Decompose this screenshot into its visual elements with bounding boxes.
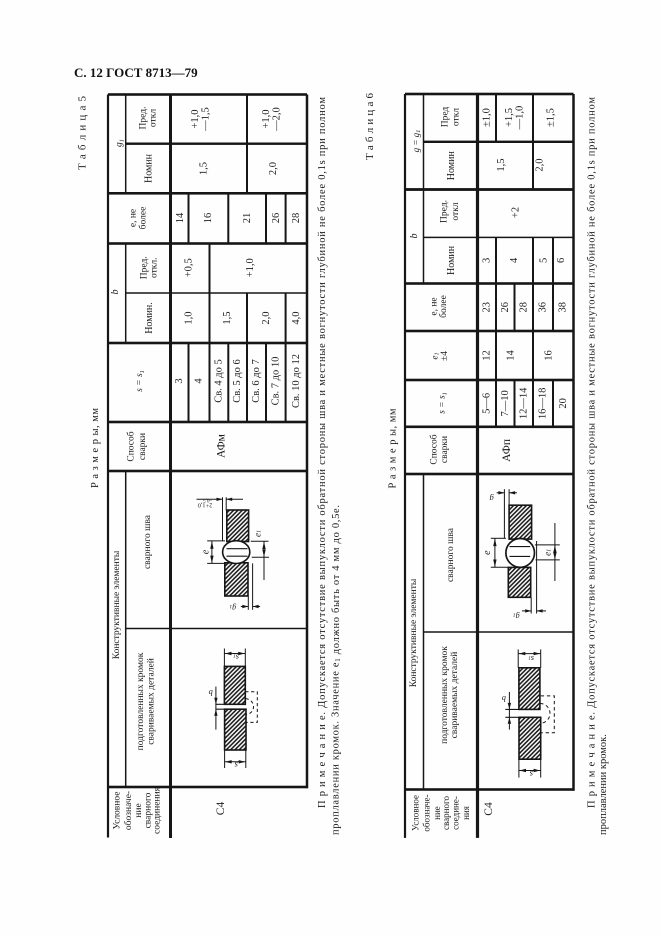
svg-text:21: 21 — [242, 213, 253, 224]
svg-text:Пред.: Пред. — [138, 107, 148, 130]
svg-text:16: 16 — [544, 350, 555, 361]
svg-text:20: 20 — [558, 398, 569, 409]
svg-text:2,0: 2,0 — [535, 158, 546, 171]
svg-text:5—6: 5—6 — [481, 393, 492, 414]
svg-text:Условное: Условное — [113, 792, 123, 830]
svg-text:проплавлении кромок.: проплавлении кромок. — [598, 734, 609, 835]
svg-text:2,0: 2,0 — [268, 162, 279, 175]
svg-text:Св. 5 до 6: Св. 5 до 6 — [232, 359, 243, 403]
svg-text:12—14: 12—14 — [518, 387, 529, 419]
svg-text:Конструктивные элементы: Конструктивные элементы — [409, 578, 419, 687]
svg-text:1,0: 1,0 — [184, 311, 195, 324]
svg-text:проплавлении кромок. Значение: проплавлении кромок. Значение е1 должно … — [331, 505, 343, 835]
svg-text:С4: С4 — [215, 802, 227, 816]
svg-text:s: s — [529, 769, 533, 779]
svg-text:4: 4 — [194, 378, 205, 384]
svg-text:сварного шва: сварного шва — [143, 514, 153, 569]
svg-text:—1,0: —1,0 — [514, 106, 525, 131]
svg-text:Условное: Условное — [410, 795, 420, 831]
svg-text:s: s — [234, 760, 238, 770]
svg-text:свариваемых деталей: свариваемых деталей — [145, 658, 156, 745]
svg-text:соедине-: соедине- — [451, 796, 461, 830]
svg-text:более: более — [438, 295, 449, 318]
svg-text:26: 26 — [271, 213, 282, 224]
svg-text:откл: откл — [451, 108, 461, 126]
svg-text:5: 5 — [539, 258, 550, 263]
svg-text:14: 14 — [175, 212, 186, 223]
svg-text:сварного шва: сварного шва — [446, 527, 456, 582]
svg-text:Св. 6 до 7: Св. 6 до 7 — [251, 359, 262, 403]
svg-text:соединения: соединения — [152, 786, 162, 834]
svg-text:12: 12 — [481, 350, 492, 361]
svg-text:4: 4 — [509, 257, 520, 263]
svg-text:свариваемых деталей: свариваемых деталей — [449, 652, 460, 739]
svg-text:ния: ния — [461, 806, 471, 820]
svg-text:Св. 7 до 10: Св. 7 до 10 — [270, 357, 281, 406]
svg-text:Номин: Номин — [144, 153, 155, 183]
svg-text:28: 28 — [518, 302, 529, 313]
svg-text:+0,5: +0,5 — [184, 258, 195, 277]
svg-text:14: 14 — [506, 350, 517, 361]
svg-text:Способ: Способ — [126, 431, 137, 461]
svg-text:—2,0: —2,0 — [272, 107, 283, 132]
svg-text:b: b — [409, 234, 420, 239]
svg-text:±1,0: ±1,0 — [481, 108, 492, 127]
svg-text:Р а з м е р ы, мм: Р а з м е р ы, мм — [90, 408, 101, 488]
svg-text:Пред.: Пред. — [140, 256, 150, 279]
svg-text:ние: ние — [134, 803, 144, 817]
svg-text:С4: С4 — [483, 802, 495, 816]
svg-text:s = s1: s = s1 — [135, 370, 146, 392]
svg-text:обозначе-: обозначе- — [422, 794, 432, 831]
svg-text:1,5: 1,5 — [496, 158, 507, 171]
svg-text:7—10: 7—10 — [500, 390, 511, 416]
svg-text:е: е — [482, 550, 493, 555]
svg-text:28: 28 — [291, 213, 302, 224]
svg-text:сварки: сварки — [440, 436, 450, 463]
svg-text:е, не: е, не — [129, 209, 139, 227]
svg-text:П р и м е ч а н и е. Допускае: П р и м е ч а н и е. Допускается отсутст… — [317, 97, 328, 808]
svg-text:2+1,0: 2+1,0 — [198, 502, 213, 509]
svg-text:b: b — [209, 688, 213, 698]
svg-text:+1,0: +1,0 — [261, 109, 272, 128]
svg-text:Т а б л и ц а 6: Т а б л и ц а 6 — [364, 93, 376, 161]
svg-text:Пред: Пред — [440, 107, 450, 128]
svg-text:сварного: сварного — [441, 796, 451, 830]
svg-text:g: g — [489, 494, 493, 504]
svg-text:Номин.: Номин. — [144, 302, 155, 334]
svg-text:Т а б л и ц а 5: Т а б л и ц а 5 — [77, 96, 89, 171]
svg-text:3: 3 — [482, 258, 493, 263]
svg-text:6: 6 — [556, 258, 567, 263]
svg-text:более: более — [137, 207, 148, 230]
svg-text:23: 23 — [481, 302, 492, 313]
svg-text:+1,0: +1,0 — [190, 109, 201, 128]
svg-text:b: b — [502, 694, 506, 704]
svg-text:±1,5: ±1,5 — [546, 108, 557, 127]
svg-text:38: 38 — [558, 302, 569, 313]
svg-text:±4: ±4 — [440, 351, 450, 361]
svg-text:—1,5: —1,5 — [201, 107, 212, 132]
svg-text:Номин: Номин — [446, 151, 457, 181]
svg-text:откл: откл — [451, 202, 461, 220]
svg-text:g = g1: g = g1 — [411, 130, 422, 153]
svg-text:АФм: АФм — [216, 433, 228, 458]
svg-text:Пред.: Пред. — [440, 200, 450, 223]
svg-text:2,0: 2,0 — [261, 311, 272, 324]
svg-text:16: 16 — [203, 213, 214, 224]
svg-text:откл: откл — [149, 109, 159, 127]
svg-text:подготовленных кромок: подготовленных кромок — [440, 646, 450, 744]
svg-text:П р и м е ч а н и е. Допускае: П р и м е ч а н и е. Допускается отсутст… — [587, 97, 598, 808]
svg-text:е: е — [200, 549, 211, 554]
svg-text:Св. 10 до 12: Св. 10 до 12 — [291, 354, 302, 408]
svg-text:+2: +2 — [511, 207, 522, 218]
svg-text:b: b — [110, 290, 121, 295]
svg-text:Номин: Номин — [446, 245, 457, 275]
svg-text:С. 12 ГОСТ 8713—79: С. 12 ГОСТ 8713—79 — [74, 65, 198, 80]
svg-text:АФп: АФп — [501, 439, 513, 462]
svg-text:Р а з м е р ы, мм: Р а з м е р ы, мм — [388, 408, 399, 488]
svg-text:подготовленных кромок: подготовленных кромок — [136, 652, 146, 750]
svg-text:36: 36 — [538, 302, 549, 313]
svg-text:Конструктивные элементы: Конструктивные элементы — [112, 550, 122, 659]
svg-text:4,0: 4,0 — [291, 311, 302, 324]
svg-text:+1,0: +1,0 — [245, 258, 256, 277]
svg-text:+1,5: +1,5 — [504, 108, 515, 127]
svg-text:26: 26 — [500, 302, 511, 313]
svg-text:1,5: 1,5 — [199, 162, 210, 175]
svg-text:сварки: сварки — [138, 433, 148, 460]
svg-text:Способ: Способ — [428, 434, 439, 464]
svg-text:обозначе-: обозначе- — [123, 791, 134, 830]
svg-text:1,5: 1,5 — [222, 311, 233, 324]
svg-text:Св. 4 до 5: Св. 4 до 5 — [213, 359, 224, 403]
svg-text:3: 3 — [174, 378, 185, 383]
svg-text:s = s1: s = s1 — [437, 392, 448, 414]
svg-text:16—18: 16—18 — [538, 388, 549, 420]
svg-text:откл.: откл. — [149, 257, 159, 278]
